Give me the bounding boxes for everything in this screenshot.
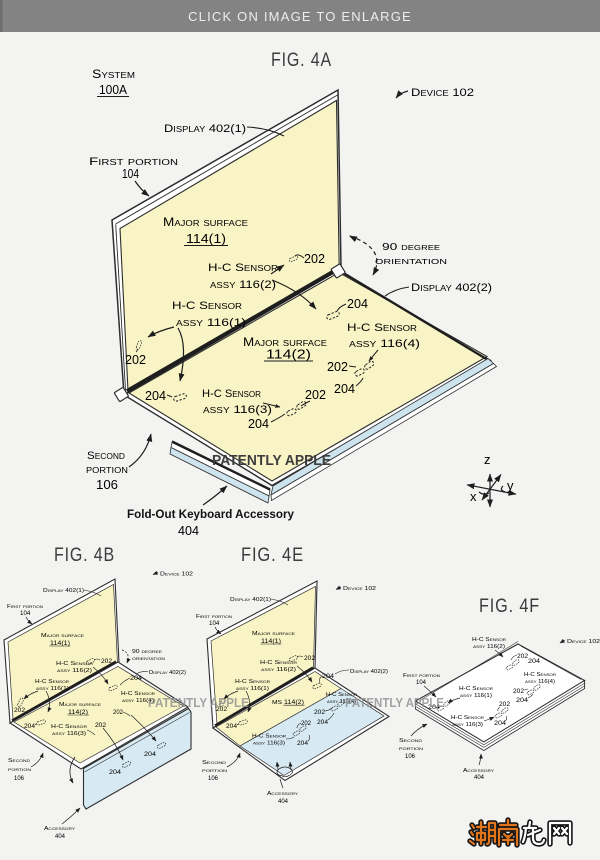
svg-text:FIG. 4A: FIG. 4A (271, 50, 332, 71)
svg-text:portion: portion (399, 746, 423, 752)
svg-text:202: 202 (517, 653, 529, 660)
svg-text:assy 116(3): assy 116(3) (203, 404, 272, 416)
svg-text:Display 402(1): Display 402(1) (43, 588, 84, 594)
svg-text:H-C Sensor: H-C Sensor (235, 679, 270, 685)
svg-text:System: System (92, 69, 135, 81)
svg-text:orientation: orientation (375, 255, 447, 267)
svg-text:Accessory: Accessory (267, 791, 298, 797)
svg-text:Device 102: Device 102 (160, 572, 193, 578)
svg-text:PATENTLY APPLE: PATENTLY APPLE (345, 696, 444, 710)
svg-text:PATENTLY APPLE: PATENTLY APPLE (212, 453, 331, 469)
svg-text:202: 202 (314, 709, 326, 716)
svg-text:202: 202 (101, 658, 113, 665)
svg-text:100A: 100A (99, 82, 127, 97)
svg-text:Display 402(1): Display 402(1) (230, 597, 271, 603)
svg-text:Second: Second (202, 760, 226, 766)
svg-text:Device 102: Device 102 (343, 586, 376, 592)
svg-text:assy 116(3): assy 116(3) (253, 741, 285, 747)
svg-text:Device 102: Device 102 (567, 639, 600, 645)
svg-text:104: 104 (122, 166, 139, 181)
svg-text:H-C Sensor: H-C Sensor (208, 262, 278, 274)
svg-text:Second: Second (87, 450, 125, 462)
svg-text:H-C Sensor: H-C Sensor (524, 672, 556, 678)
svg-text:assy 116(2): assy 116(2) (261, 667, 296, 673)
svg-text:Display 402(2): Display 402(2) (411, 282, 492, 294)
svg-text:Display 402(2): Display 402(2) (350, 669, 388, 675)
svg-text:H-C Sensor: H-C Sensor (202, 388, 261, 400)
svg-text:assy 116(1): assy 116(1) (176, 317, 246, 329)
svg-text:assy 116(3): assy 116(3) (452, 722, 483, 728)
svg-text:114(2): 114(2) (266, 347, 311, 362)
svg-text:assy 116(4): assy 116(4) (525, 679, 555, 685)
svg-text:106: 106 (405, 753, 416, 760)
svg-text:Major surface: Major surface (163, 217, 248, 229)
svg-text:Second: Second (8, 758, 30, 764)
svg-text:204: 204 (347, 296, 368, 311)
svg-text:204: 204 (516, 697, 529, 704)
svg-text:204: 204 (130, 675, 143, 682)
svg-text:202: 202 (304, 251, 325, 266)
svg-text:204: 204 (334, 381, 355, 396)
svg-text:404: 404 (474, 774, 485, 781)
svg-text:204: 204 (24, 723, 36, 730)
svg-text:202: 202 (14, 707, 26, 714)
svg-text:114(1): 114(1) (186, 231, 226, 246)
svg-text:204: 204 (322, 673, 335, 680)
svg-text:H-C Sensor: H-C Sensor (472, 637, 506, 643)
svg-text:404: 404 (178, 523, 199, 538)
svg-text:202: 202 (95, 722, 107, 729)
svg-text:assy 116(2): assy 116(2) (57, 668, 92, 674)
svg-text:202: 202 (327, 359, 348, 374)
svg-text:106: 106 (208, 775, 219, 782)
svg-text:204: 204 (226, 723, 238, 730)
svg-text:orientation: orientation (132, 656, 165, 662)
svg-text:assy 116(2): assy 116(2) (473, 644, 505, 650)
svg-text:H-C Sensor: H-C Sensor (347, 322, 417, 334)
svg-text:202: 202 (513, 688, 525, 695)
svg-text:assy 116(2): assy 116(2) (210, 279, 276, 291)
svg-text:106: 106 (96, 477, 118, 492)
svg-text:Accessory: Accessory (44, 826, 75, 832)
svg-text:H-C Sensor: H-C Sensor (35, 679, 69, 685)
svg-text:CLICK ON IMAGE TO ENLARGE: CLICK ON IMAGE TO ENLARGE (188, 9, 412, 24)
svg-text:202: 202 (305, 387, 326, 402)
svg-text:x: x (470, 489, 477, 504)
svg-text:202: 202 (499, 701, 511, 708)
svg-text:204: 204 (494, 720, 507, 727)
svg-text:104: 104 (20, 610, 31, 617)
svg-text:204: 204 (145, 388, 166, 403)
svg-text:portion: portion (202, 768, 227, 774)
svg-text:404: 404 (278, 798, 289, 805)
svg-text:Major surface: Major surface (41, 633, 84, 639)
svg-text:204: 204 (528, 658, 541, 665)
svg-text:Device 102: Device 102 (411, 87, 474, 99)
svg-text:H-C Sensor: H-C Sensor (260, 660, 297, 666)
svg-text:MS: MS (272, 700, 282, 706)
svg-text:FIG. 4F: FIG. 4F (479, 596, 540, 617)
svg-text:portion: portion (86, 464, 128, 476)
svg-text:FIG. 4B: FIG. 4B (54, 545, 115, 566)
svg-text:assy 116(4): assy 116(4) (349, 338, 420, 350)
svg-text:FIG. 4E: FIG. 4E (241, 545, 304, 566)
svg-text:H-C Sensor: H-C Sensor (252, 734, 286, 740)
svg-text:Display 402(2): Display 402(2) (149, 670, 186, 676)
svg-text:Second: Second (399, 738, 422, 744)
svg-text:202: 202 (113, 709, 124, 716)
svg-text:106: 106 (14, 775, 25, 782)
svg-text:PATENTLY APPLE: PATENTLY APPLE (148, 696, 249, 710)
svg-text:Major surface: Major surface (59, 702, 101, 708)
svg-text:H-C Sensor: H-C Sensor (459, 686, 493, 692)
svg-text:104: 104 (209, 620, 220, 627)
svg-text:y: y (507, 478, 514, 493)
svg-text:Major surface: Major surface (252, 631, 295, 637)
svg-text:204: 204 (317, 719, 329, 726)
svg-text:204: 204 (144, 751, 157, 758)
svg-text:202: 202 (301, 720, 312, 727)
svg-text:204: 204 (248, 416, 269, 431)
svg-text:90 degree: 90 degree (132, 649, 162, 655)
svg-text:204: 204 (109, 769, 122, 776)
svg-text:assy 116(1): assy 116(1) (236, 686, 269, 692)
svg-text:90 degree: 90 degree (382, 241, 440, 253)
svg-text:H-C Sensor: H-C Sensor (51, 724, 87, 730)
svg-text:104: 104 (416, 679, 427, 686)
svg-text:z: z (484, 452, 491, 467)
svg-text:202: 202 (125, 352, 146, 367)
svg-text:204: 204 (297, 740, 309, 747)
svg-text:H-C Sensor: H-C Sensor (56, 661, 93, 667)
svg-text:Fold-Out Keyboard Accessory: Fold-Out Keyboard Accessory (127, 507, 294, 521)
svg-text:assy 116(3): assy 116(3) (52, 731, 86, 737)
svg-text:portion: portion (8, 767, 31, 773)
svg-text:H-C Sensor: H-C Sensor (451, 715, 484, 721)
svg-text:202: 202 (304, 655, 316, 662)
svg-text:H-C Sensor: H-C Sensor (172, 300, 242, 312)
svg-text:Display 402(1): Display 402(1) (164, 123, 246, 135)
svg-text:assy 116(1): assy 116(1) (36, 686, 69, 692)
svg-text:assy 116(1): assy 116(1) (460, 693, 492, 699)
svg-text:404: 404 (55, 833, 66, 840)
